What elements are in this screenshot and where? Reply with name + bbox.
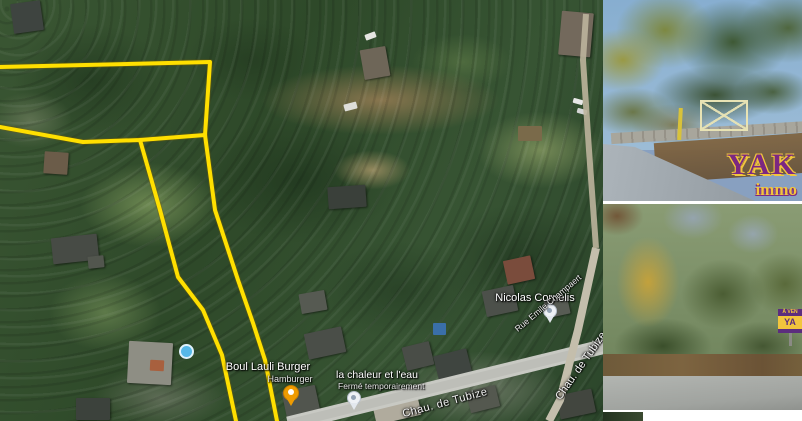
property-photo-partial[interactable] xyxy=(603,412,643,421)
photo2-road xyxy=(603,376,802,410)
logo-brand-text: YAK xyxy=(727,150,797,180)
poi-label-chaleur[interactable]: la chaleur et l'eau xyxy=(336,369,418,381)
sign-header-text: À VEN xyxy=(778,309,802,316)
a-vendre-sign: À VEN YA xyxy=(778,309,802,346)
empty-sign-frame xyxy=(700,100,748,131)
driveway xyxy=(583,14,596,248)
map-overlay-svg xyxy=(0,0,603,421)
property-photo-woodland[interactable]: À VEN YA xyxy=(603,204,802,410)
logo-sub-text: immo xyxy=(727,181,797,198)
yak-immo-logo: YAK immo xyxy=(727,150,797,198)
poi-sublabel-burger: Hamburger xyxy=(240,374,340,384)
listing-media-panel: Boul Lauli Burger Hamburger la chaleur e… xyxy=(0,0,802,421)
satellite-map[interactable]: Boul Lauli Burger Hamburger la chaleur e… xyxy=(0,0,603,421)
poi-label-burger[interactable]: Boul Lauli Burger xyxy=(210,361,326,373)
poi-label-cornelis[interactable]: Nicolas Cornelis xyxy=(485,292,585,304)
photo2-trees xyxy=(603,204,802,376)
water-feature-icon xyxy=(179,344,194,359)
sign-body-text: YA xyxy=(778,316,802,329)
poi-status-chaleur: Fermé temporairement xyxy=(338,381,424,391)
sign-post xyxy=(789,333,792,346)
property-photo-street-view[interactable]: YAK immo xyxy=(603,0,802,201)
